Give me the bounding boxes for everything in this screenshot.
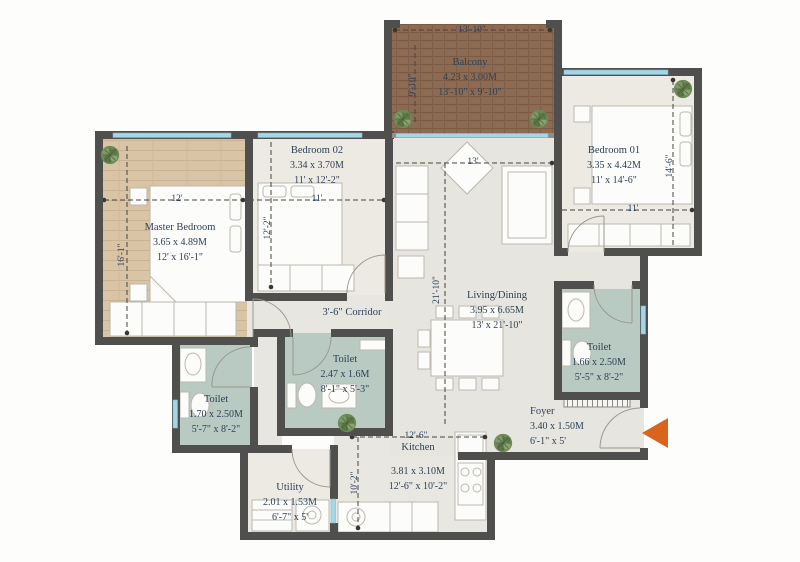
floor-plan: Balcony 4.23 x 3.00M 13'-10" x 9'-10" Be…: [0, 0, 800, 562]
floor-plan-drawing: [0, 0, 800, 562]
plant-icon: [674, 80, 692, 98]
plant-icon: [394, 110, 412, 128]
entry-arrow-icon: [642, 418, 668, 448]
plant-icon: [338, 414, 356, 432]
plant-icon: [530, 110, 548, 128]
plant-icon: [494, 434, 512, 452]
plant-icon: [101, 146, 119, 164]
